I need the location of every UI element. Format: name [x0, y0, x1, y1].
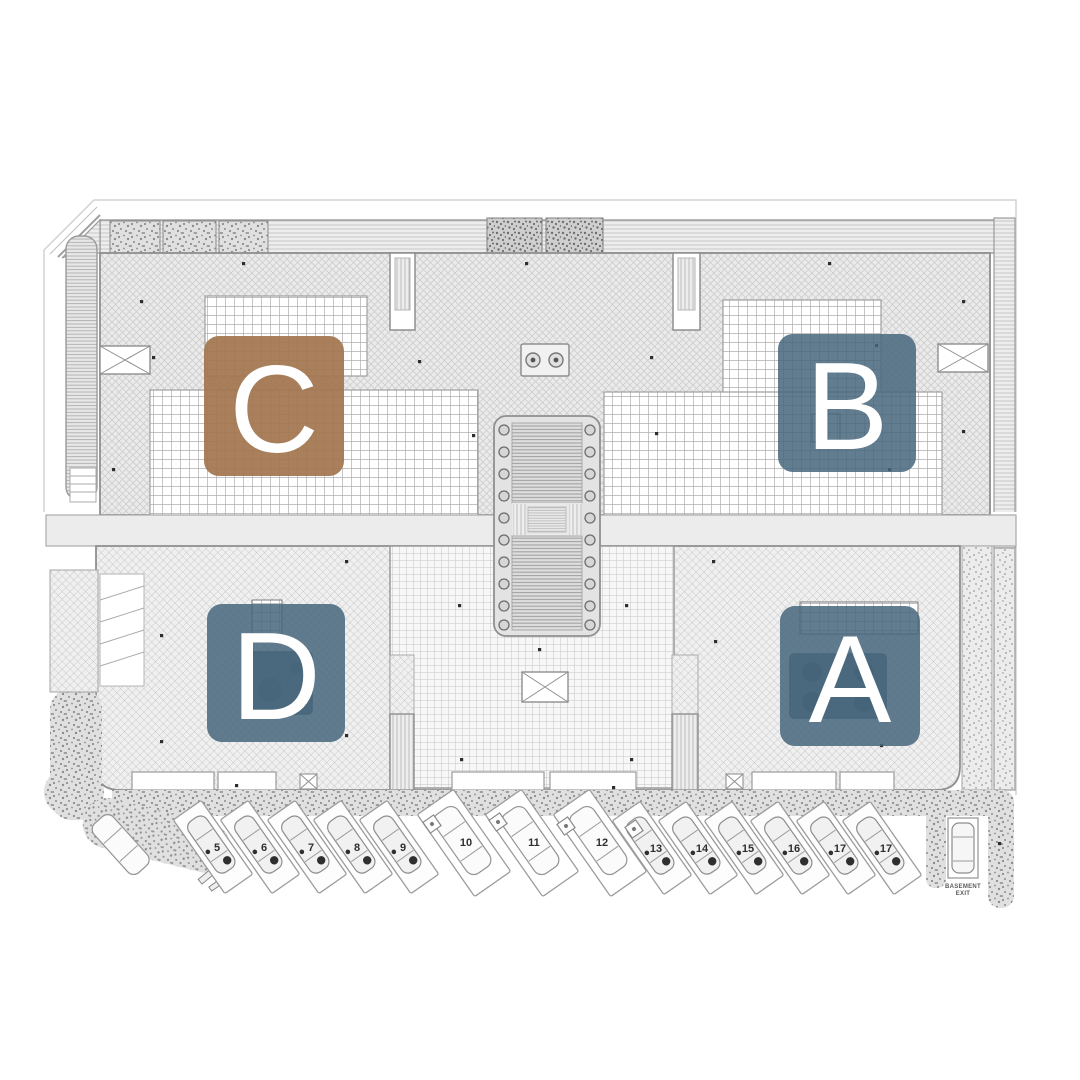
plan-dot	[460, 758, 463, 761]
louver-band	[66, 236, 97, 500]
ramp	[672, 714, 698, 790]
parking-stall-number: 6	[261, 842, 267, 854]
roof-slot	[673, 253, 700, 330]
parking-stall-number: 10	[460, 837, 472, 849]
planter-box	[487, 218, 542, 258]
basement-exit-label: BASEMENT	[945, 884, 981, 890]
twin-skylight-fixture	[521, 344, 569, 376]
right-band-upper	[994, 218, 1015, 548]
plan-dot	[140, 300, 143, 303]
curb-column	[988, 790, 1014, 908]
side-steps	[100, 574, 144, 686]
bench	[218, 772, 276, 790]
bench-xbox	[726, 774, 743, 789]
block-chip-c-label: C	[229, 341, 319, 479]
curb-column	[926, 790, 946, 888]
plan-dot	[152, 356, 155, 359]
plan-dot	[625, 604, 628, 607]
plan-dot	[712, 560, 715, 563]
plan-dot	[242, 262, 245, 265]
plan-dot	[345, 734, 348, 737]
landing-block	[513, 504, 526, 535]
planter-box	[546, 218, 603, 258]
landing-block	[569, 504, 582, 535]
plan-dot	[235, 784, 238, 787]
plan-dot	[160, 740, 163, 743]
right-band-lower	[994, 548, 1015, 790]
bench	[550, 772, 636, 790]
stair-run-upper	[512, 423, 582, 503]
plan-dot	[630, 758, 633, 761]
block-chip-d[interactable]: D	[207, 604, 345, 746]
parking-stall-number: 13	[650, 843, 662, 855]
block-chip-a-label: A	[809, 611, 892, 749]
parking-stall-number: 5	[214, 842, 220, 854]
plan-dot	[962, 300, 965, 303]
side-ramp	[50, 570, 98, 692]
block-chip-b[interactable]: B	[778, 334, 916, 476]
skylight-xbox	[522, 672, 568, 702]
parking-stall-number: 8	[354, 842, 360, 854]
planter-box	[110, 221, 160, 253]
top-planting-strip	[62, 218, 1014, 258]
block-chip-b-label: B	[806, 338, 889, 476]
floor-plan-canvas: 5 6 7 8 9 10 11 12 13 14 15 16 17 17 BAS…	[0, 0, 1080, 1080]
planter-box	[219, 221, 268, 253]
parking-stall-number: 15	[742, 843, 754, 855]
plaza-planting	[672, 655, 698, 715]
planter-box	[163, 221, 216, 253]
parking-stall-number: 17	[880, 843, 892, 855]
bench	[132, 772, 214, 790]
bench	[840, 772, 894, 790]
parking-stall-number: 12	[596, 837, 608, 849]
steps	[70, 468, 96, 502]
right-walkway	[992, 218, 1017, 790]
plan-dot	[828, 262, 831, 265]
plan-dot	[112, 468, 115, 471]
plan-dot	[538, 648, 541, 651]
bench	[452, 772, 544, 790]
parking-stall-number: 9	[400, 842, 406, 854]
vent-shaft	[100, 346, 150, 374]
parking-stall-number: 11	[528, 837, 540, 849]
parking-stall-number: 17	[834, 843, 846, 855]
grand-stair-court	[494, 416, 600, 636]
block-chip-c[interactable]: C	[204, 336, 344, 479]
landing-steps	[528, 507, 566, 532]
plan-dot	[160, 634, 163, 637]
parking-stall-number: 16	[788, 843, 800, 855]
block-chip-a[interactable]: A	[780, 606, 920, 749]
ramp	[390, 714, 414, 790]
basement-exit-stall: BASEMENT EXIT	[945, 818, 981, 897]
plan-dot	[612, 786, 615, 789]
right-margin-band	[962, 546, 992, 790]
plan-dot	[345, 560, 348, 563]
left-walkway	[66, 236, 97, 502]
plan-dot	[998, 842, 1001, 845]
plan-dot	[458, 604, 461, 607]
bench-xbox	[300, 774, 317, 789]
parking-stall-number: 14	[696, 843, 709, 855]
plan-dot	[418, 360, 421, 363]
vent-shaft	[938, 344, 988, 372]
plan-dot	[525, 262, 528, 265]
plan-dot	[962, 430, 965, 433]
stair-run-lower	[512, 536, 582, 630]
plan-dot	[650, 356, 653, 359]
parking-stall-number: 7	[308, 842, 314, 854]
plan-dot	[714, 640, 717, 643]
basement-exit-label: EXIT	[956, 891, 971, 897]
site-plan-svg: 5 6 7 8 9 10 11 12 13 14 15 16 17 17 BAS…	[0, 0, 1080, 1080]
plaza-planting	[390, 655, 414, 715]
roof-slot	[390, 253, 415, 330]
plan-dot	[472, 434, 475, 437]
block-chip-d-label: D	[231, 608, 321, 746]
plan-dot	[655, 432, 658, 435]
bench	[752, 772, 836, 790]
